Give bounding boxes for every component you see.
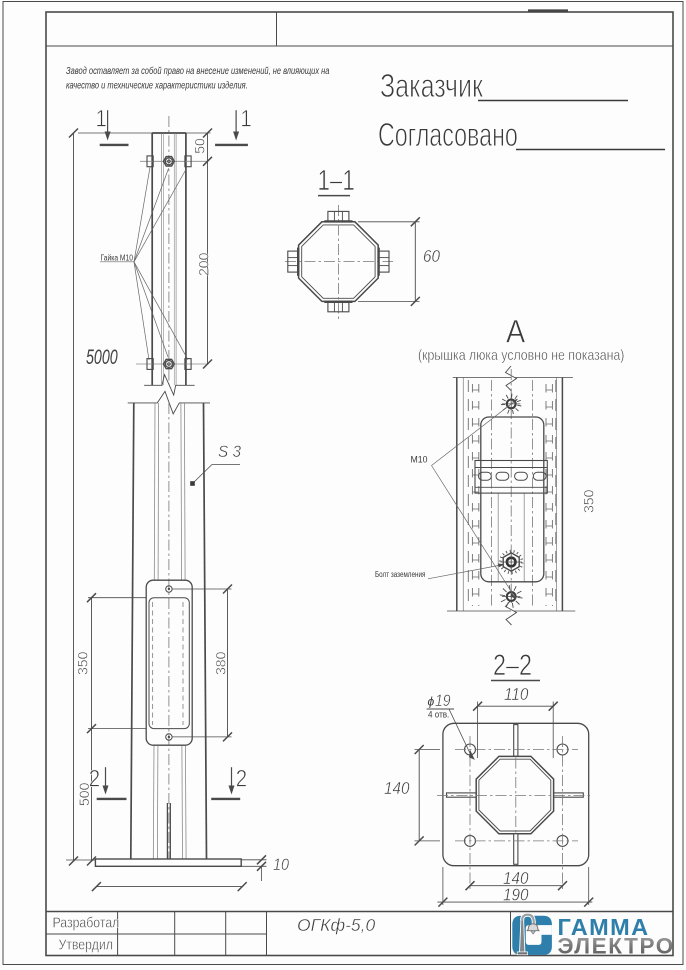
- svg-text:Болт заземления: Болт заземления: [375, 569, 425, 579]
- svg-text:19: 19: [435, 692, 451, 710]
- svg-text:ЭЛЕКТРО: ЭЛЕКТРО: [558, 934, 675, 959]
- svg-text:350: 350: [75, 651, 91, 675]
- svg-text:140: 140: [384, 778, 410, 798]
- svg-text:2: 2: [89, 765, 100, 792]
- svg-text:200: 200: [196, 252, 212, 276]
- svg-text:110: 110: [504, 684, 529, 704]
- svg-text:ϕ: ϕ: [428, 695, 435, 709]
- svg-text:2: 2: [236, 765, 247, 792]
- svg-text:60: 60: [423, 246, 441, 266]
- svg-text:Утвердил: Утвердил: [59, 936, 113, 952]
- svg-text:S 3: S 3: [218, 442, 241, 461]
- svg-text:Согласовано: Согласовано: [378, 117, 518, 154]
- svg-text:1: 1: [240, 105, 251, 132]
- svg-text:Разработал: Разработал: [53, 914, 120, 930]
- svg-text:Гайка М10: Гайка М10: [101, 253, 133, 263]
- svg-text:4 отв.: 4 отв.: [428, 709, 449, 720]
- svg-text:5000: 5000: [86, 345, 118, 368]
- svg-text:Завод оставляет за собой право: Завод оставляет за собой право на внесен…: [66, 65, 330, 76]
- svg-text:1–1: 1–1: [318, 165, 355, 196]
- svg-text:50: 50: [192, 138, 208, 154]
- svg-text:190: 190: [503, 884, 529, 904]
- svg-text:350: 350: [581, 489, 597, 513]
- svg-text:2–2: 2–2: [493, 648, 532, 681]
- svg-text:10: 10: [273, 856, 289, 874]
- svg-text:1: 1: [96, 105, 107, 132]
- svg-text:380: 380: [213, 651, 229, 675]
- svg-text:качество и технические характе: качество и технические характеристики из…: [66, 79, 248, 90]
- svg-text:Заказчик: Заказчик: [380, 68, 483, 105]
- svg-text:М10: М10: [411, 454, 428, 464]
- svg-text:ОГКф-5,0: ОГКф-5,0: [297, 915, 375, 935]
- svg-text:А: А: [506, 314, 526, 350]
- svg-text:(крышка люка условно не показа: (крышка люка условно не показана): [418, 347, 624, 363]
